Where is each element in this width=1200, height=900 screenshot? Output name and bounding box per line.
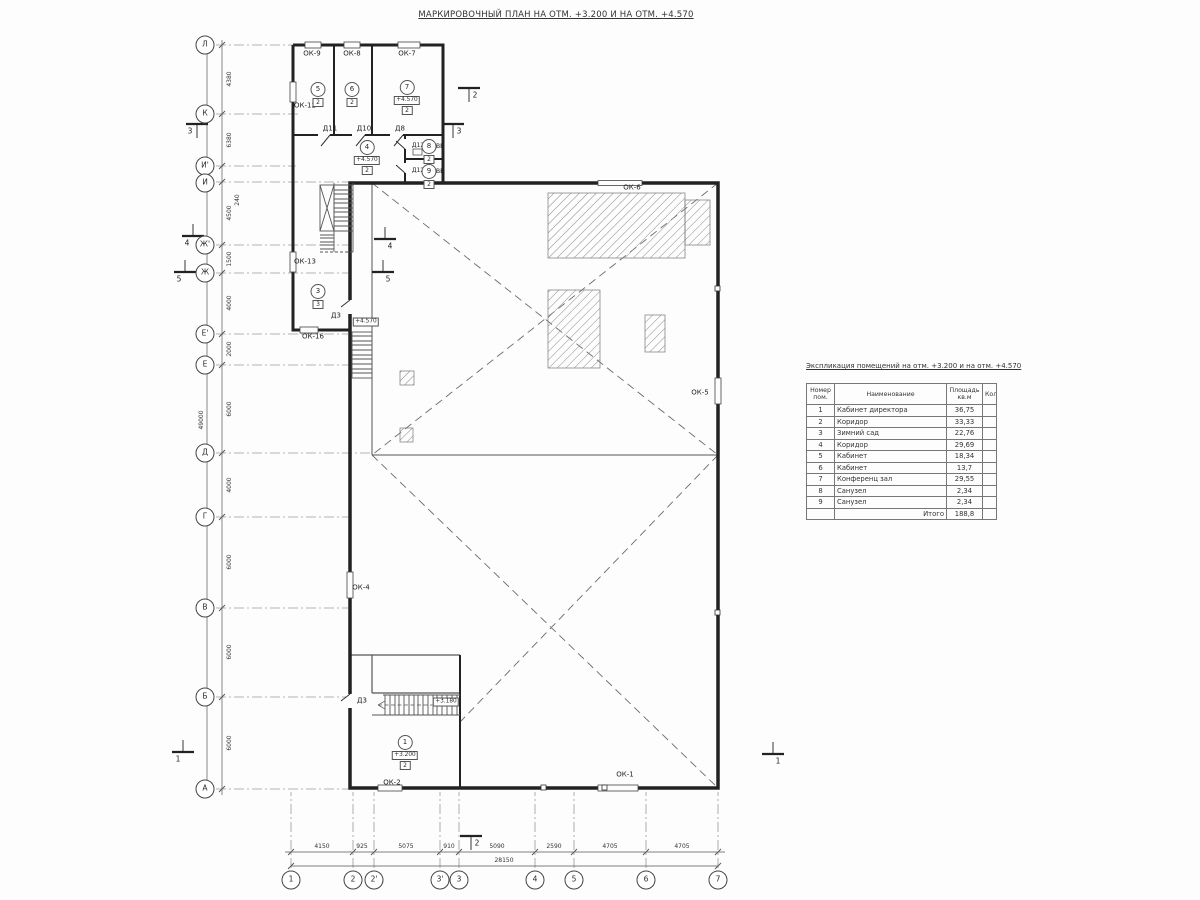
room-number: 7 — [399, 80, 414, 95]
axis-bubble-letter: Е — [196, 356, 215, 375]
cell-room-name: Коридор — [835, 439, 947, 451]
dim-bottom: 4705 — [602, 844, 617, 850]
cell-room-qty — [983, 439, 997, 451]
table-row: 3 Зимний сад 22,76 — [807, 428, 997, 440]
axis-bubble-number: 2' — [365, 871, 384, 890]
cell-room-name: Кабинет — [835, 451, 947, 463]
total-label: Итого — [835, 508, 947, 520]
axis-bubble-letter: Л — [196, 36, 215, 55]
window-label: ОК-1 — [616, 772, 633, 779]
axis-bubble-number: 2 — [344, 871, 363, 890]
window-label: ОК-5 — [691, 390, 708, 397]
axis-bubble-letter: Г — [196, 508, 215, 527]
axis-bubble-letter: Б — [196, 688, 215, 707]
axis-bubble-letter: И — [196, 174, 215, 193]
dim-left: 6380 — [227, 132, 233, 147]
cell-room-name: Кабинет директора — [835, 405, 947, 417]
dim-bottom: 5075 — [398, 844, 413, 850]
cell-room-qty — [983, 451, 997, 463]
dim-bottom-total: 28150 — [494, 858, 513, 864]
section-number: 1 — [776, 757, 781, 765]
axis-lines — [216, 45, 718, 868]
window-label: ОК-13 — [294, 259, 316, 266]
cell-room-area: 13,7 — [947, 462, 983, 474]
cell-room-area: 2,34 — [947, 485, 983, 497]
hatch-areas — [400, 193, 710, 442]
section-number: 5 — [386, 275, 391, 283]
cell-room-name: Санузел — [835, 485, 947, 497]
total-area: 188,8 — [947, 508, 983, 520]
cell-room-qty — [983, 405, 997, 417]
vent-label: ВЕ — [436, 169, 444, 175]
dim-left-total: 49000 — [199, 410, 205, 429]
room-marker: 7 +4.570 2 — [394, 80, 420, 115]
dim-left: 240 — [235, 194, 241, 205]
cell-room-qty — [983, 462, 997, 474]
schedule-table: Номер пом. Наименование Площадь кв.м Кол… — [806, 383, 997, 520]
dim-left: 2000 — [227, 341, 233, 356]
cell-room-name: Конференц зал — [835, 474, 947, 486]
window-label: ОК-8 — [343, 51, 360, 58]
cell-room-qty — [983, 428, 997, 440]
room-ref: 2 — [401, 106, 412, 115]
door-label: Д3 — [357, 698, 367, 705]
axis-bubble-letter: А — [196, 780, 215, 799]
dim-left: 6000 — [227, 401, 233, 416]
room-number: 4 — [359, 140, 374, 155]
room-number: 9 — [422, 164, 437, 179]
room-ref: 2 — [399, 761, 410, 770]
cell-room-area: 2,34 — [947, 497, 983, 509]
cell-room-qty — [983, 497, 997, 509]
total-empty — [807, 508, 835, 520]
room-ref: 3 — [313, 300, 324, 309]
room-number: 5 — [311, 82, 326, 97]
total-qty — [983, 508, 997, 520]
cell-room-number: 3 — [807, 428, 835, 440]
cell-room-name: Зимний сад — [835, 428, 947, 440]
window-label: ОК-16 — [302, 334, 324, 341]
axis-bubble-number: 6 — [637, 871, 656, 890]
room-marker: 9 2 — [422, 164, 437, 189]
axis-bubble-letter: Ж' — [196, 236, 215, 255]
door-label: Д8 — [395, 126, 405, 133]
door-label: Д11 — [323, 126, 337, 133]
cell-room-number: 9 — [807, 497, 835, 509]
dim-bottom: 910 — [443, 844, 454, 850]
room-number: 6 — [345, 82, 360, 97]
room-ref: 2 — [313, 98, 324, 107]
cell-room-area: 18,34 — [947, 451, 983, 463]
door-label: Д3 — [331, 313, 341, 320]
dim-bottom: 2590 — [546, 844, 561, 850]
dim-bottom: 5090 — [489, 844, 504, 850]
room-elevation: +3.200 — [392, 751, 418, 760]
dim-left: 6000 — [227, 554, 233, 569]
cell-room-number: 1 — [807, 405, 835, 417]
window-label: ОК-2 — [383, 780, 400, 787]
axis-bubble-letter: В — [196, 599, 215, 618]
axis-bubble-letter: Д — [196, 444, 215, 463]
cell-room-name: Санузел — [835, 497, 947, 509]
table-row: 7 Конференц зал 29,55 — [807, 474, 997, 486]
axis-bubble-number: 5 — [565, 871, 584, 890]
axis-bubble-letter: Е' — [196, 325, 215, 344]
col-header-number: Номер пом. — [807, 384, 835, 405]
col-header-name: Наименование — [835, 384, 947, 405]
room-elevation: +4.570 — [354, 156, 380, 165]
dim-left: 1500 — [227, 251, 233, 266]
room-number: 1 — [397, 735, 412, 750]
dim-left: 6000 — [227, 735, 233, 750]
section-number: 5 — [177, 275, 182, 283]
cell-room-name: Кабинет — [835, 462, 947, 474]
axis-bubble-number: 4 — [526, 871, 545, 890]
window-label: ОК-6 — [623, 185, 640, 192]
room-marker: 1 +3.200 2 — [392, 735, 418, 770]
room-marker: 5 2 — [311, 82, 326, 107]
table-row: 6 Кабинет 13,7 — [807, 462, 997, 474]
room-marker: 4 +4.570 2 — [354, 140, 380, 175]
axis-bubble-number: 7 — [709, 871, 728, 890]
room-marker: 3 3 — [311, 284, 326, 309]
dim-left: 6000 — [227, 644, 233, 659]
cell-room-area: 29,55 — [947, 474, 983, 486]
axis-bubble-letter: К — [196, 105, 215, 124]
cell-room-area: 22,76 — [947, 428, 983, 440]
schedule-total-row: Итого 188,8 — [807, 508, 997, 520]
section-number: 2 — [473, 91, 478, 99]
axis-bubble-letter: Ж — [196, 264, 215, 283]
room-elevation: +4.570 — [394, 96, 420, 105]
window-label: ОК-7 — [398, 51, 415, 58]
dim-bottom: 4150 — [314, 844, 329, 850]
cell-room-area: 33,33 — [947, 416, 983, 428]
drawing-sheet: МАРКИРОВОЧНЫЙ ПЛАН НА ОТМ. +3.200 И НА О… — [0, 0, 1200, 900]
room-ref: 2 — [361, 166, 372, 175]
section-number: 2 — [475, 839, 480, 847]
cell-room-number: 5 — [807, 451, 835, 463]
col-header-area: Площадь кв.м — [947, 384, 983, 405]
cell-room-qty — [983, 474, 997, 486]
cell-room-area: 36,75 — [947, 405, 983, 417]
dim-left: 4000 — [227, 295, 233, 310]
table-row: 4 Коридор 29,69 — [807, 439, 997, 451]
cell-room-number: 6 — [807, 462, 835, 474]
cell-room-number: 4 — [807, 439, 835, 451]
axis-bubble-number: 1 — [282, 871, 301, 890]
room-number: 8 — [422, 139, 437, 154]
section-number: 3 — [188, 127, 193, 135]
room-ref: 2 — [424, 180, 435, 189]
room-ref: 2 — [424, 155, 435, 164]
cell-room-area: 29,69 — [947, 439, 983, 451]
door-openings — [347, 139, 407, 708]
section-number: 1 — [176, 755, 181, 763]
cell-room-name: Коридор — [835, 416, 947, 428]
dim-left: 4500 — [227, 205, 233, 220]
diagonal-void-lines — [372, 183, 718, 788]
axis-bubble-number: 3' — [431, 871, 450, 890]
room-schedule: Экспликация помещений на отм. +3.200 и н… — [806, 362, 1002, 520]
room-number: 3 — [311, 284, 326, 299]
cell-room-number: 8 — [807, 485, 835, 497]
table-row: 9 Санузел 2,34 — [807, 497, 997, 509]
cell-room-qty — [983, 485, 997, 497]
cell-room-qty — [983, 416, 997, 428]
schedule-body: 1 Кабинет директора 36,75 2 Коридор 33,3… — [807, 405, 997, 509]
axis-bubble-number: 3 — [450, 871, 469, 890]
room-marker: 6 2 — [345, 82, 360, 107]
door-label: Д10 — [357, 126, 371, 133]
col-header-qty: Кол. — [983, 384, 997, 405]
section-number: 4 — [185, 239, 190, 247]
floor-plan-drawing — [0, 0, 1200, 900]
section-number: 4 — [388, 242, 393, 250]
table-row: 5 Кабинет 18,34 — [807, 451, 997, 463]
elevation-box: +3.180 — [433, 698, 459, 707]
dim-left: 4000 — [227, 477, 233, 492]
room-ref: 2 — [347, 98, 358, 107]
window-label: ОК-4 — [352, 585, 369, 592]
window-label: ОК-9 — [303, 51, 320, 58]
stairs — [320, 183, 460, 715]
section-number: 3 — [457, 127, 462, 135]
cell-room-number: 2 — [807, 416, 835, 428]
dim-bottom: 4705 — [674, 844, 689, 850]
table-row: 2 Коридор 33,33 — [807, 416, 997, 428]
schedule-header-row: Номер пом. Наименование Площадь кв.м Кол… — [807, 384, 997, 405]
cell-room-number: 7 — [807, 474, 835, 486]
table-row: 8 Санузел 2,34 — [807, 485, 997, 497]
dim-bottom: 925 — [356, 844, 367, 850]
table-row: 1 Кабинет директора 36,75 — [807, 405, 997, 417]
elevation-box: +4.570 — [353, 318, 379, 327]
dim-left: 4380 — [227, 71, 233, 86]
vent-label: ВЕ — [436, 144, 444, 150]
room-marker: 8 2 — [422, 139, 437, 164]
schedule-title: Экспликация помещений на отм. +3.200 и н… — [806, 362, 1002, 370]
